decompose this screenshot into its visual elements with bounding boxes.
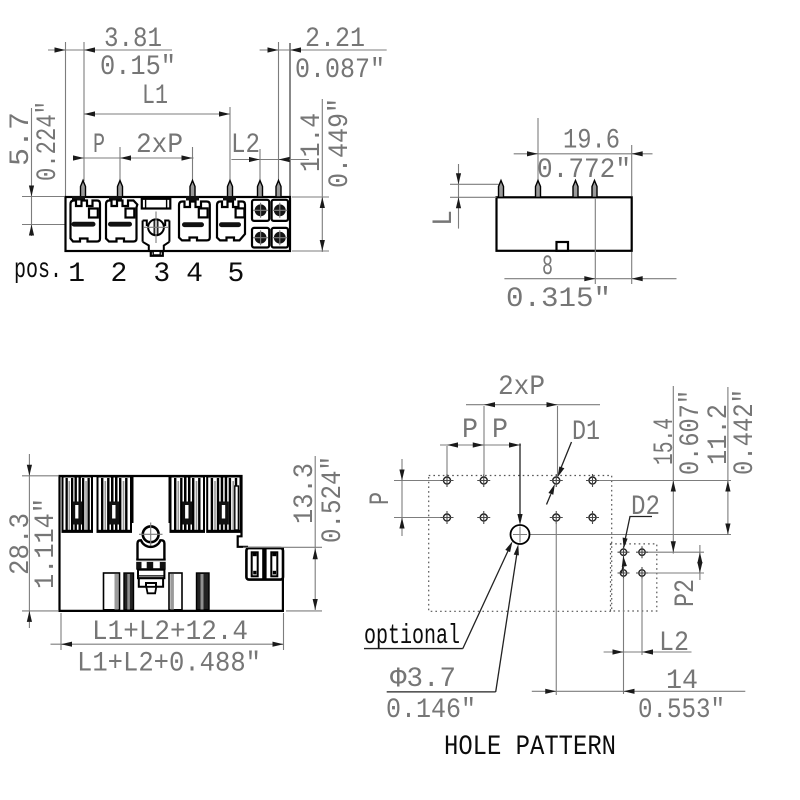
svg-text:3: 3 <box>153 259 170 290</box>
svg-text:L: L <box>429 210 460 226</box>
svg-text:5: 5 <box>227 259 244 290</box>
svg-text:11.4: 11.4 <box>297 113 328 172</box>
svg-text:13.3: 13.3 <box>290 463 321 524</box>
svg-text:2: 2 <box>110 259 127 290</box>
svg-text:Φ3.7: Φ3.7 <box>390 664 456 695</box>
svg-text:8: 8 <box>542 252 553 283</box>
svg-text:0.315": 0.315" <box>506 284 611 315</box>
svg-text:0.224": 0.224" <box>33 101 64 181</box>
svg-text:0.772": 0.772" <box>537 155 631 186</box>
svg-text:L2: L2 <box>231 130 260 161</box>
svg-text:L1: L1 <box>142 81 168 112</box>
svg-text:19.6: 19.6 <box>563 126 620 157</box>
svg-text:P: P <box>492 415 508 446</box>
svg-text:4: 4 <box>186 259 203 290</box>
svg-text:14: 14 <box>666 666 698 697</box>
svg-text:0.524": 0.524" <box>318 456 349 543</box>
svg-text:0.607": 0.607" <box>676 390 707 475</box>
svg-text:L1+L2+0.488": L1+L2+0.488" <box>77 649 261 680</box>
svg-text:3.81: 3.81 <box>104 24 162 55</box>
svg-text:0.553": 0.553" <box>638 695 725 726</box>
svg-text:pos.: pos. <box>14 255 62 286</box>
svg-text:D1: D1 <box>572 417 600 448</box>
svg-text:0.15": 0.15" <box>100 52 176 83</box>
svg-text:D2: D2 <box>631 492 660 523</box>
svg-text:2.21: 2.21 <box>305 24 365 55</box>
svg-text:P: P <box>462 415 478 446</box>
svg-text:1: 1 <box>68 259 85 290</box>
svg-text:2xP: 2xP <box>136 130 183 161</box>
svg-text:P: P <box>93 130 105 161</box>
svg-text:0.087": 0.087" <box>295 55 385 86</box>
svg-text:optional: optional <box>364 621 460 652</box>
svg-text:HOLE PATTERN: HOLE PATTERN <box>444 732 616 763</box>
svg-text:L2: L2 <box>659 628 689 659</box>
svg-text:0.442": 0.442" <box>730 389 761 475</box>
svg-text:2xP: 2xP <box>498 372 545 403</box>
svg-text:P2: P2 <box>671 579 702 607</box>
svg-text:P: P <box>366 492 397 505</box>
svg-text:0.449": 0.449" <box>325 98 356 188</box>
svg-text:0.146": 0.146" <box>386 695 476 726</box>
svg-text:L1+L2+12.4: L1+L2+12.4 <box>92 617 248 648</box>
svg-text:1.114": 1.114" <box>31 498 62 589</box>
